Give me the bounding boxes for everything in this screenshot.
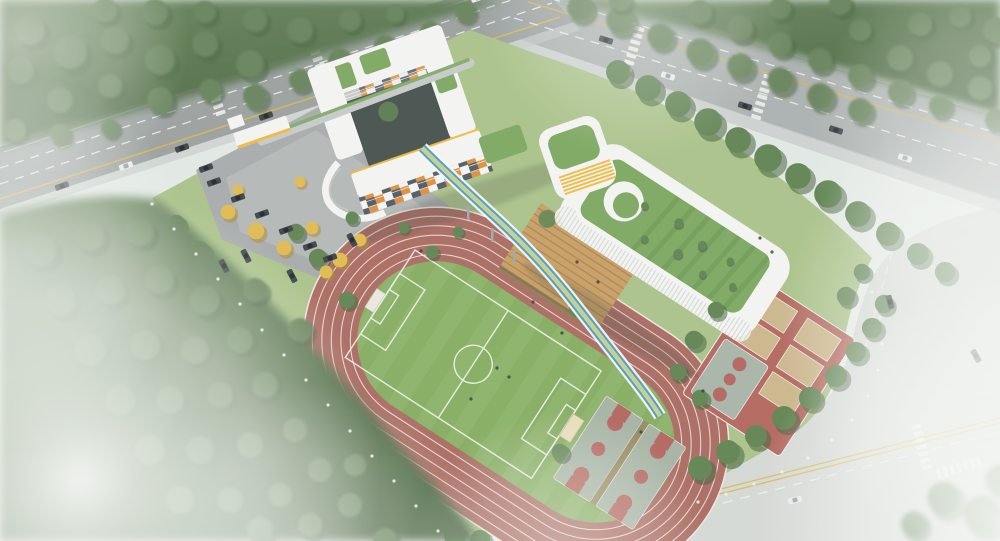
- rendering-stage: Aerial rendering of a school campus with…: [0, 0, 1000, 541]
- atmospheric-fog: [0, 0, 1000, 541]
- campus-aerial-rendering: Aerial rendering of a school campus with…: [0, 0, 1000, 541]
- haze-veil: [0, 0, 1000, 541]
